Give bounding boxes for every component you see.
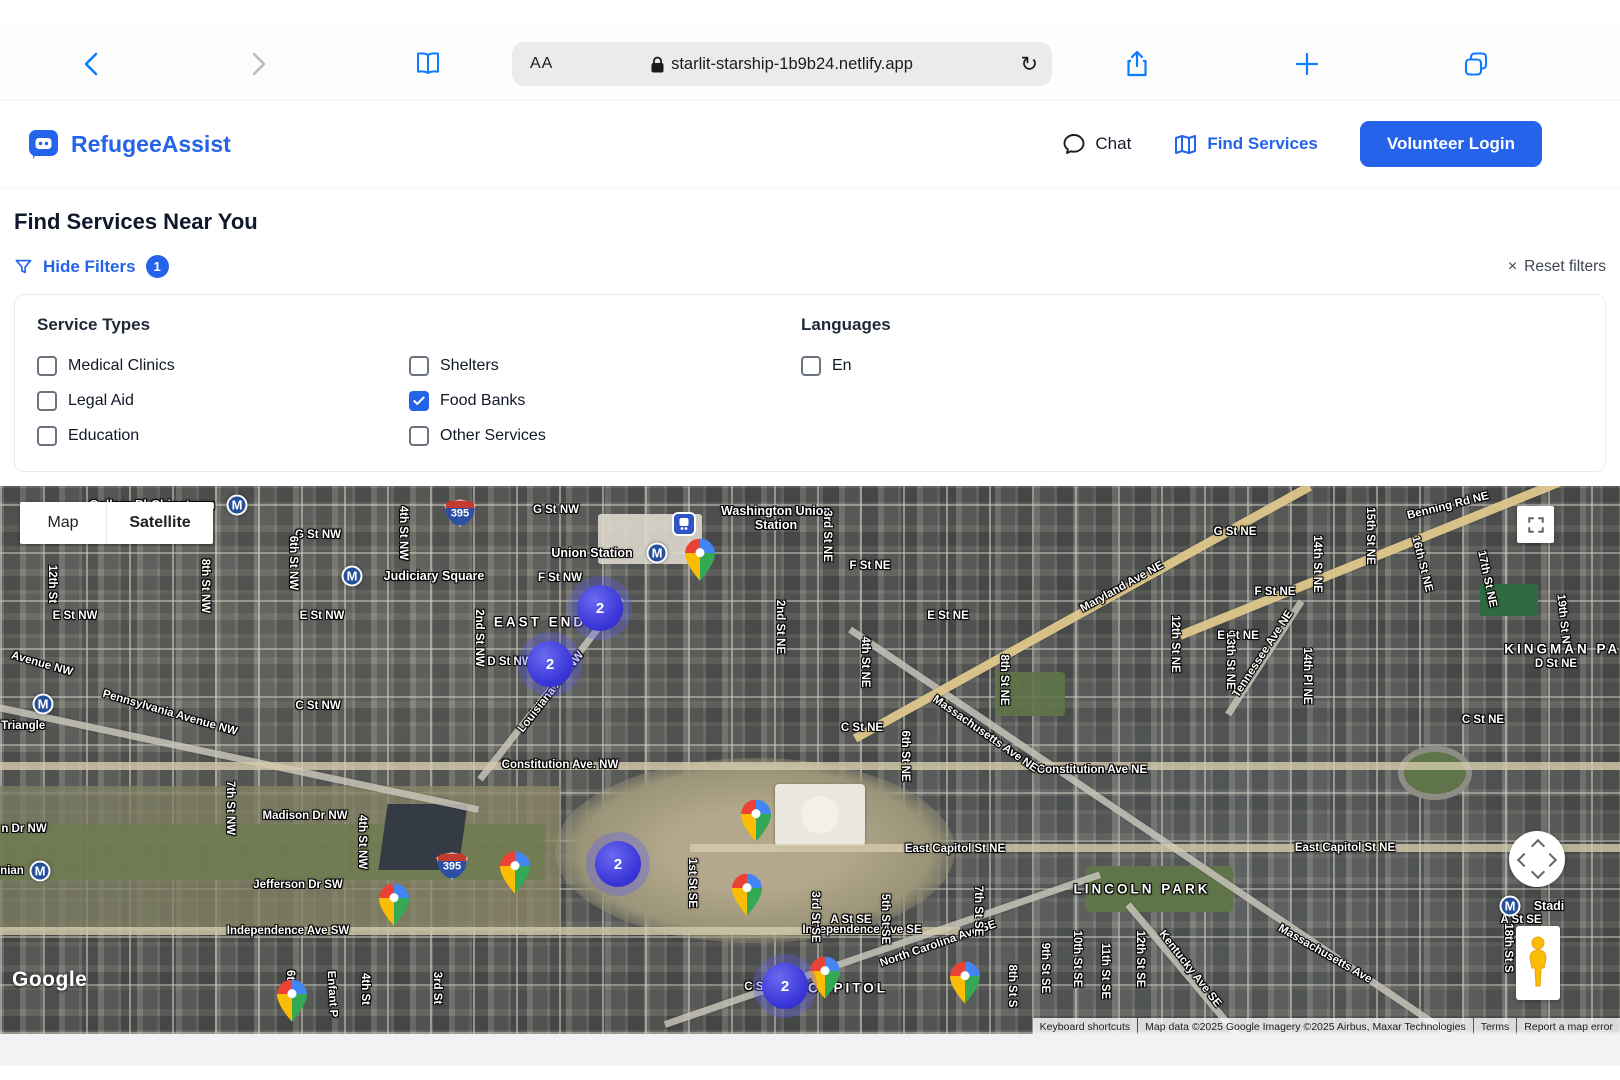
map-label: 17th St NE [1475,550,1499,609]
pegman-button[interactable] [1516,926,1560,1000]
page-background [0,1034,1620,1066]
map-label: D St NE [1535,658,1577,670]
nav-find-services-label: Find Services [1207,134,1318,154]
text-size-button[interactable]: AA [530,42,553,86]
map-label: 18th St S [1502,923,1514,972]
map-label: 14th Pl NE [1301,648,1313,705]
languages-section: Languages En [801,315,1583,453]
share-icon [1125,50,1149,78]
map-label: l Triangle [0,720,45,732]
interstate-shield: 395 [445,500,476,527]
checkbox-unchecked-icon[interactable] [37,391,57,411]
map-label: 2nd St NE [774,600,786,654]
nav-chat-label: Chat [1095,134,1131,154]
map-label: 15th St NE [1364,507,1376,565]
brand[interactable]: RefugeeAssist [28,129,231,160]
map-label: Stadi [1534,899,1565,913]
share-button[interactable] [1125,50,1149,78]
checkbox-label: Legal Aid [68,392,134,410]
pan-control[interactable] [1509,831,1565,887]
map-label: 12th St SE [1134,931,1146,988]
checkbox-label: Medical Clinics [68,357,175,375]
map-label: Washington Union Station [715,504,837,532]
map-label: G St NE [1214,526,1257,538]
metro-icon: M [1500,896,1521,917]
map-label: F St NE [1255,586,1296,598]
map-label: 12th St [46,565,58,603]
map-pin[interactable] [379,884,409,926]
fullscreen-button[interactable] [1517,506,1554,543]
map-pin[interactable] [950,962,980,1004]
map-label: 16th St NE [1409,535,1435,594]
map-label: 8th St NW [199,559,211,613]
map-label: Kentucky Ave SE [1156,928,1223,1009]
map-label: Tennessee Ave NE [1230,608,1295,699]
checkbox-medical-clinics[interactable]: Medical Clinics [37,356,409,376]
checkbox-unchecked-icon[interactable] [37,356,57,376]
map-label: Constitution Ave NE [1037,764,1147,776]
metro-icon: M [647,543,668,564]
map-label: E St NE [927,610,969,622]
service-types-list: Medical ClinicsLegal AidEducationShelter… [37,348,801,453]
map-label: 14th St NE [1311,535,1323,593]
filter-count-badge: 1 [146,255,169,278]
tabs-button[interactable] [1463,51,1489,77]
chevron-down-icon [1531,865,1545,879]
map-label: Benning Rd NE [1406,490,1490,522]
lock-icon [651,56,664,73]
map-label: Jefferson Dr SW [253,879,342,891]
map-label: 3rd St [431,972,443,1005]
map-label: Judiciary Square [384,569,485,583]
map-overlay-layer: Gallery Pl-ChinatownG St NWG St NWJudici… [0,486,1620,1034]
cluster-marker[interactable]: 2 [577,585,623,631]
book-icon [414,51,442,77]
checkbox-unchecked-icon[interactable] [409,426,429,446]
map-label: 1st St SE [686,858,698,908]
app-header: RefugeeAssist Chat Find Services Volunte… [0,101,1620,187]
map-pin[interactable] [500,852,530,894]
checkbox-label: Other Services [440,427,546,445]
chevron-left-icon [81,51,103,77]
metro-icon: M [30,861,51,882]
checkbox-label: Food Banks [440,392,525,410]
cluster-marker[interactable]: 2 [527,641,573,687]
url-text: starlit-starship-1b9b24.netlify.app [671,55,913,74]
tabs-icon [1463,51,1489,77]
map-view-button[interactable]: Map [20,502,106,544]
map-type-toggle: Map Satellite [20,502,213,544]
interstate-shield: 395 [437,853,468,880]
map-label: Maryland Ave NE [1078,559,1165,615]
map-label: 5th St SE [879,894,891,944]
map-label: Pennsylvania Avenue NW [101,688,239,738]
map-label: 3rd St NE [821,510,833,562]
reset-filters-button[interactable]: × Reset filters [1508,258,1606,276]
map-label: C St NE [841,722,883,734]
checkbox-shelters[interactable]: Shelters [409,356,781,376]
reload-button[interactable]: ↻ [1020,42,1038,86]
map-label: 4th St NW [397,506,409,560]
filter-panel: Service Types Medical ClinicsLegal AidEd… [14,294,1606,472]
nav-chat-link[interactable]: Chat [1062,132,1131,156]
service-types-title: Service Types [37,315,801,335]
close-icon: × [1508,258,1517,276]
map-label: North Carolina Ave SE [878,918,997,969]
map-label: Massachusetts Ave NE [930,693,1039,775]
map-label: 7th St NW [224,781,236,835]
map-label: 6th St NE [899,730,911,781]
chevron-right-icon [1543,853,1557,867]
map-label: 2nd St NW [473,609,485,667]
map-label: Madison Dr NW [263,810,348,822]
chevron-left-icon [1517,853,1531,867]
map-label: 8th St S [1006,965,1018,1008]
pegman-icon [1525,935,1551,991]
nav-find-services-link[interactable]: Find Services [1173,132,1318,156]
checkbox-other-services[interactable]: Other Services [409,426,781,446]
map-label: C St NW [295,700,340,712]
checkbox-label: Education [68,427,139,445]
map-label: E St NW [300,610,345,622]
map-label: nian [0,865,24,877]
plus-icon [1294,51,1320,77]
checkbox-label: En [832,357,852,375]
checkbox-checked-icon[interactable] [409,391,429,411]
checkbox-unchecked-icon[interactable] [409,356,429,376]
map-label: Constitution Ave. NW [502,759,619,771]
map-pin[interactable] [741,800,771,842]
map-label: 4th St NW [356,815,368,869]
checkbox-legal-aid[interactable]: Legal Aid [37,391,409,411]
browser-toolbar: AA starlit-starship-1b9b24.netlify.app ↻ [0,28,1620,101]
fullscreen-icon [1527,516,1545,534]
map-canvas[interactable]: Gallery Pl-ChinatownG St NWG St NWJudici… [0,486,1620,1034]
map-label: 11th St SE [1099,943,1111,999]
header-nav: Chat Find Services Volunteer Login [1062,121,1542,167]
map-label: 6th St NW [287,536,299,590]
map-label: Enfant P [325,970,339,1017]
map-label: E St NE [1217,630,1259,642]
map-label: 4th St NE [859,636,871,687]
map-label: 4th St [359,973,371,1005]
checkbox-unchecked-icon[interactable] [801,356,821,376]
checkbox-food-banks[interactable]: Food Banks [409,391,781,411]
google-logo[interactable]: Google [12,968,87,992]
metro-icon: M [342,566,363,587]
map-label: C St NE [1462,714,1504,726]
map-pin[interactable] [810,957,840,999]
map-pin[interactable] [732,874,762,916]
map-label: D St NW [487,656,532,668]
checkbox-unchecked-icon[interactable] [37,426,57,446]
map-label: EAST END [494,615,586,630]
map-label: Avenue NW [10,649,74,678]
filter-toggle-row: Hide Filters 1 × Reset filters [14,255,1606,278]
page-title: Find Services Near You [14,209,1620,235]
volunteer-login-button[interactable]: Volunteer Login [1360,121,1542,167]
map-label: East Capitol St NE [1295,842,1395,854]
map-label: 12th St NE [1169,615,1181,673]
brand-chat-logo-icon [28,129,59,160]
map-label: G St NW [533,504,579,516]
map-data-text: Map data ©2025 Google Imagery ©2025 Airb… [1138,1018,1473,1034]
map-label: Independence Ave SW [227,925,349,937]
map-label: A St SE [830,914,871,926]
checkbox-en[interactable]: En [801,356,1583,376]
map-label: KINGMAN PARK [1504,642,1620,657]
keyboard-shortcuts-link[interactable]: Keyboard shortcuts [1033,1018,1137,1034]
map-label: East Capitol St NE [905,843,1005,855]
chevron-up-icon [1531,839,1545,853]
brand-name: RefugeeAssist [71,131,231,158]
map-label: E St NW [53,610,98,622]
checkbox-education[interactable]: Education [37,426,409,446]
languages-list: En [801,348,1583,453]
map-label: 8th St NE [998,654,1010,705]
metro-icon: M [33,694,54,715]
satellite-view-button[interactable]: Satellite [106,502,213,544]
reset-filters-label: Reset filters [1524,258,1606,276]
map-label: 19th St N [1554,594,1571,645]
funnel-icon [14,257,33,276]
chat-bubble-icon [1062,132,1086,156]
map-label: 9th St SE [1039,943,1051,993]
map-attribution: Keyboard shortcuts Map data ©2025 Google… [1033,1018,1620,1034]
hide-filters-button[interactable]: Hide Filters 1 [14,255,169,278]
map-label: F St NE [850,560,891,572]
map-label: 13th St NE [1224,632,1236,690]
reload-icon: ↻ [1020,52,1038,77]
reading-list-button[interactable] [414,51,442,77]
map-label: n Dr NW [1,823,46,835]
metro-icon: M [227,495,248,516]
map-label: Independence Ave SE [802,924,921,936]
map-label: 7th St SE [972,886,984,936]
cluster-marker[interactable]: 2 [595,841,641,887]
map-label: G St NW [295,529,341,541]
map-label: 10th St SE [1071,931,1083,988]
service-types-section: Service Types Medical ClinicsLegal AidEd… [37,315,801,453]
checkbox-label: Shelters [440,357,499,375]
map-label: Massachusetts Ave [1276,922,1374,985]
map-icon [1173,132,1198,156]
hide-filters-label: Hide Filters [43,257,136,277]
train-station-icon [672,512,696,536]
terms-link[interactable]: Terms [1474,1018,1517,1034]
forward-button[interactable] [247,51,269,77]
url-bar[interactable]: AA starlit-starship-1b9b24.netlify.app ↻ [512,42,1052,86]
chevron-right-icon [247,51,269,77]
map-label: Union Station [551,546,632,560]
new-tab-button[interactable] [1294,51,1320,77]
map-pin[interactable] [277,980,307,1022]
back-button[interactable] [81,51,103,77]
map-label: F St NW [538,572,582,584]
report-error-link[interactable]: Report a map error [1517,1018,1620,1034]
map-label: LINCOLN PARK [1074,882,1211,897]
cluster-marker[interactable]: 2 [762,963,808,1009]
map-label: 3rd St SE [809,891,821,942]
map-pin[interactable] [685,539,715,581]
window-top-strip [0,0,1620,28]
languages-title: Languages [801,315,1583,335]
